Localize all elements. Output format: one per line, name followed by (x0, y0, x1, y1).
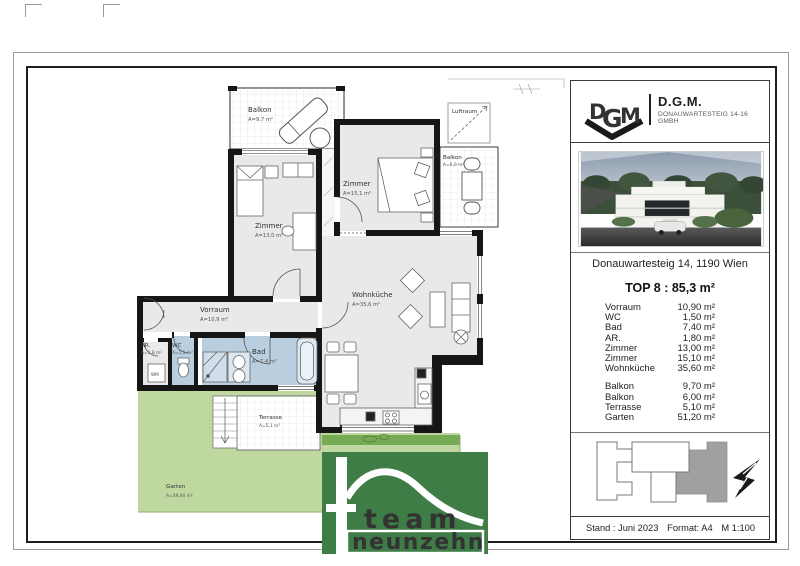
company-subtitle: DONAUWARTESTEIG 14-16 GMBH (658, 111, 769, 125)
svg-text:A=9,7 m²: A=9,7 m² (248, 117, 273, 123)
svg-text:A=1,5 m²: A=1,5 m² (172, 350, 193, 356)
floorplan-sheet: Balkon A=9,7 m² Zimmer A=13,0 m² Zimmer … (0, 0, 800, 566)
crop-mark (103, 4, 120, 17)
label-zimmer2: Zimmer (343, 180, 371, 188)
unit-title: TOP 8 : 85,3 m² (571, 275, 769, 300)
address: Donauwartesteig 14, 1190 Wien (571, 253, 769, 275)
label-ar: AR. (141, 343, 151, 349)
svg-text:A=10,9 m²: A=10,9 m² (200, 317, 228, 323)
area-row: Garten51,20 m² (605, 413, 715, 423)
company-text: D.G.M. DONAUWARTESTEIG 14-16 GMBH (649, 94, 769, 125)
balcony-top-left (228, 86, 345, 149)
building-photo-section (571, 143, 769, 254)
area-label: Garten (605, 413, 634, 423)
info-panel: D G M D.G.M. DONAUWARTESTEIG 14-16 GMBH (570, 80, 770, 540)
company-name: D.G.M. (658, 94, 769, 109)
footer-stand: Stand : Juni 2023 (586, 523, 658, 533)
area-table: Vorraum10,90 m² WC1,50 m² Bad7,40 m² AR.… (571, 300, 769, 432)
svg-text:A=7,4 m²: A=7,4 m² (252, 359, 277, 365)
title-block-footer: Stand : Juni 2023 Format: A4 M 1:100 (571, 516, 769, 539)
dgm-logo: D G M (583, 85, 645, 141)
dimension-marks (448, 79, 564, 94)
label-luftraum: Luftraum (452, 109, 477, 115)
label-zimmer1: Zimmer (255, 222, 283, 230)
label-wc: WC (172, 343, 182, 349)
crop-mark (25, 4, 42, 17)
brand-logo-graphic: team neunzehn (322, 452, 488, 554)
svg-text:A=5,1 m²: A=5,1 m² (259, 423, 280, 429)
footer-format: Format: A4 (667, 523, 712, 533)
area-row: Wohnküche35,60 m² (605, 364, 715, 374)
svg-text:A=6,0 m²: A=6,0 m² (443, 162, 464, 168)
company-header: D G M D.G.M. DONAUWARTESTEIG 14-16 GMBH (571, 81, 769, 143)
label-terrasse: Terrasse (258, 415, 283, 421)
label-balkon1: Balkon (248, 106, 272, 114)
label-balkon2: Balkon (443, 155, 462, 161)
logo-t-cross (326, 504, 356, 512)
svg-text:M: M (620, 104, 641, 128)
label-wohnkueche: Wohnküche (352, 291, 393, 299)
svg-text:A=15,1 m²: A=15,1 m² (343, 191, 371, 197)
footer-scale: M 1:100 (721, 523, 755, 533)
team-neunzehn-logo: team neunzehn (322, 452, 488, 554)
site-plan-section (571, 432, 769, 516)
north-arrow-icon (733, 459, 760, 498)
svg-text:A=35,6 m²: A=35,6 m² (352, 302, 380, 308)
label-garten: Garten (166, 484, 186, 490)
area-label: Wohnküche (605, 364, 655, 374)
svg-text:A=1,8 m²: A=1,8 m² (141, 350, 162, 356)
svg-text:A=39,40 m²: A=39,40 m² (166, 493, 193, 499)
terrace (213, 396, 320, 450)
area-value: 51,20 m² (678, 413, 716, 423)
building-photo (578, 151, 764, 247)
label-vorraum: Vorraum (200, 306, 230, 314)
site-plan (577, 437, 763, 513)
area-value: 35,60 m² (678, 364, 716, 374)
label-bad: Bad (252, 348, 266, 356)
brand-line2: neunzehn (352, 530, 485, 554)
svg-text:A=13,0 m²: A=13,0 m² (255, 233, 283, 239)
label-wm: WM (151, 372, 159, 377)
